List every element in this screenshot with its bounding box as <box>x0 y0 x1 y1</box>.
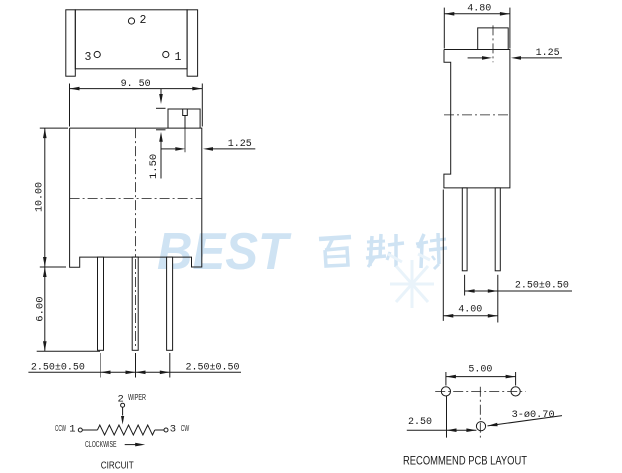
svg-text:CCW: CCW <box>55 424 66 433</box>
svg-text:1.25: 1.25 <box>536 48 560 59</box>
svg-text:3: 3 <box>85 51 92 64</box>
svg-text:9. 50: 9. 50 <box>121 79 151 90</box>
svg-text:CW: CW <box>181 424 190 433</box>
svg-text:10.00: 10.00 <box>35 182 46 212</box>
svg-text:3-ø0.70: 3-ø0.70 <box>512 410 555 421</box>
svg-text:5.00: 5.00 <box>468 364 492 375</box>
svg-text:1: 1 <box>69 424 75 436</box>
svg-text:1: 1 <box>175 51 182 64</box>
svg-text:2.50±0.50: 2.50±0.50 <box>31 362 85 373</box>
svg-text:2.50: 2.50 <box>408 417 432 428</box>
svg-text:CIRCUIT: CIRCUIT <box>101 461 134 472</box>
svg-text:2: 2 <box>140 14 147 27</box>
svg-text:WIPER: WIPER <box>128 393 146 402</box>
svg-text:4.80: 4.80 <box>467 4 491 15</box>
svg-text:CLOCKWISE: CLOCKWISE <box>85 440 117 449</box>
svg-text:6.00: 6.00 <box>35 296 47 321</box>
svg-text:RECOMMEND PCB LAYOUT: RECOMMEND PCB LAYOUT <box>403 454 528 468</box>
svg-text:1.50: 1.50 <box>148 154 160 179</box>
svg-text:4.00: 4.00 <box>458 304 482 315</box>
svg-text:1.25: 1.25 <box>228 139 252 150</box>
svg-text:BEST: BEST <box>157 223 292 281</box>
svg-text:2.50±0.50: 2.50±0.50 <box>186 362 240 373</box>
svg-text:2.50±0.50: 2.50±0.50 <box>515 280 569 291</box>
svg-text:3: 3 <box>170 424 176 436</box>
